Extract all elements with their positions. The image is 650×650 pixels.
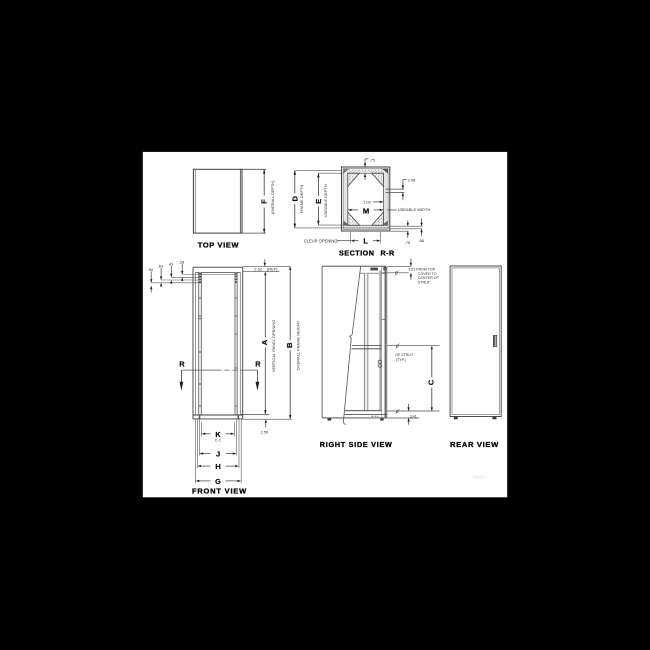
svg-text:M: M (363, 206, 369, 215)
svg-text:C: C (426, 379, 435, 385)
svg-text:STRUT.: STRUT. (418, 280, 431, 284)
svg-text:.43: .43 (168, 261, 174, 266)
svg-text:.28: .28 (179, 259, 185, 264)
svg-text:FRAME DEPTH: FRAME DEPTH (299, 185, 304, 214)
svg-text:RIGHT SIDE VIEW: RIGHT SIDE VIEW (320, 440, 393, 449)
svg-text:.75: .75 (405, 240, 411, 245)
svg-text:A: A (260, 339, 269, 345)
svg-text:L: L (363, 237, 368, 246)
svg-text:F: F (259, 199, 268, 204)
svg-text:USEABLE WIDTH: USEABLE WIDTH (398, 207, 431, 212)
svg-text:E: E (314, 199, 323, 204)
svg-text:B: B (285, 342, 294, 348)
svg-text:OF STRUT: OF STRUT (395, 353, 414, 357)
svg-text:REAR VIEW: REAR VIEW (450, 440, 499, 449)
svg-text:TOP VIEW: TOP VIEW (198, 241, 239, 250)
svg-text:.88: .88 (418, 238, 424, 243)
svg-text:2.50: 2.50 (261, 430, 270, 435)
svg-text:(REF): (REF) (267, 267, 278, 272)
svg-text:.50: .50 (148, 267, 154, 272)
svg-text:VERTICAL PANEL OPENING: VERTICAL PANEL OPENING (271, 320, 276, 373)
svg-text:SECTIONR-R: SECTIONR-R (339, 249, 395, 258)
svg-text:R: R (179, 360, 185, 369)
svg-text:3.51 FROM TOP: 3.51 FROM TOP (408, 267, 435, 271)
svg-text:J: J (216, 450, 220, 459)
svg-text:2.62: 2.62 (254, 267, 263, 272)
svg-text:G: G (215, 477, 221, 486)
svg-text:.63: .63 (158, 264, 164, 269)
svg-text:3.41: 3.41 (410, 415, 417, 419)
svg-text:R: R (255, 360, 261, 369)
svg-text:(TYP.): (TYP.) (396, 358, 406, 362)
svg-text:CLEAR OPENING: CLEAR OPENING (304, 239, 338, 244)
svg-text:OVERALL FRAME HEIGHT: OVERALL FRAME HEIGHT (295, 320, 300, 370)
svg-text:2.08: 2.08 (408, 178, 417, 183)
svg-text:.75: .75 (370, 157, 376, 162)
svg-text:1.03: 1.03 (363, 200, 372, 205)
svg-text:H: H (215, 462, 220, 471)
svg-text:USEABLE DEPTH: USEABLE DEPTH (323, 184, 328, 217)
svg-text:(OVERALL DEPTH): (OVERALL DEPTH) (271, 180, 275, 215)
svg-text:FRONT VIEW: FRONT VIEW (192, 486, 247, 495)
svg-text:C-C: C-C (215, 438, 222, 442)
